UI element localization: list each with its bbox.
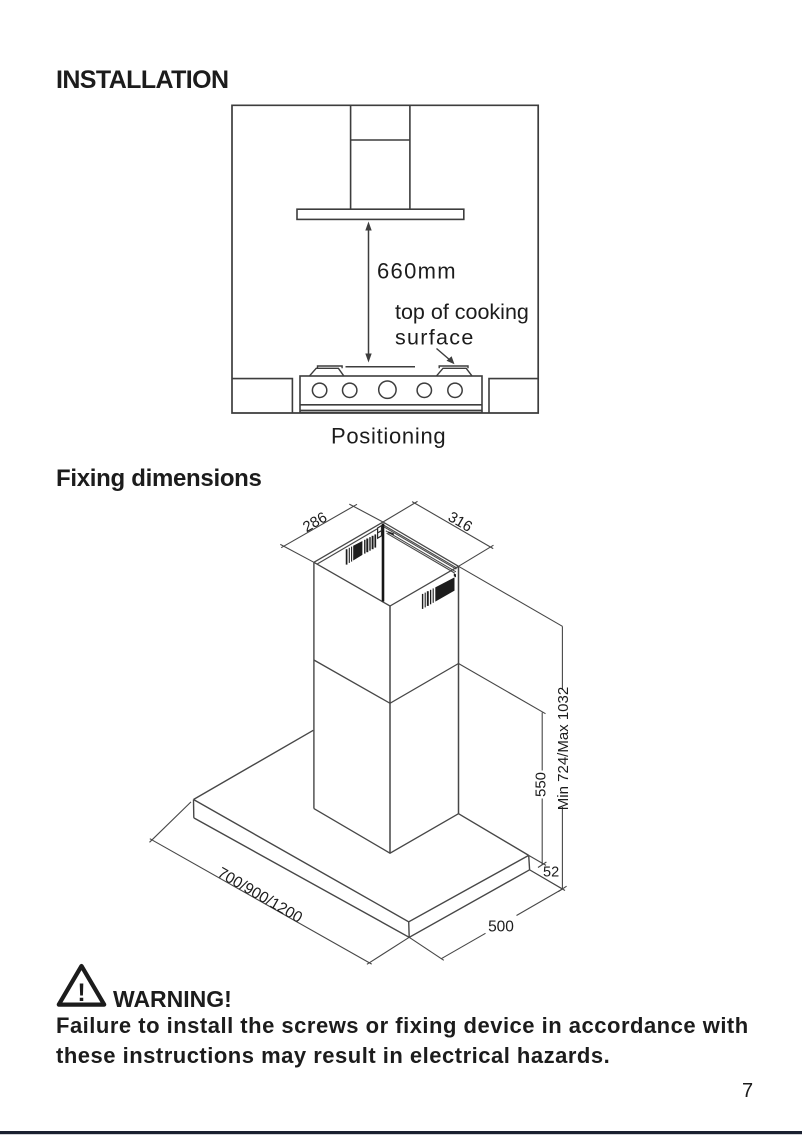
svg-text:Positioning: Positioning xyxy=(331,424,446,449)
svg-text:Min 724/Max 1032: Min 724/Max 1032 xyxy=(555,687,572,810)
svg-text:INSTALLATION: INSTALLATION xyxy=(56,66,228,94)
svg-text:Fixing dimensions: Fixing dimensions xyxy=(56,465,262,492)
svg-text:Failure to install the screws: Failure to install the screws or fixing … xyxy=(56,1013,749,1038)
svg-text:!: ! xyxy=(77,979,85,1007)
svg-text:500: 500 xyxy=(488,918,514,935)
svg-text:316: 316 xyxy=(445,508,475,535)
svg-text:7: 7 xyxy=(742,1080,753,1102)
svg-text:top of cooking: top of cooking xyxy=(395,300,529,324)
svg-text:52: 52 xyxy=(543,864,559,880)
svg-text:660mm: 660mm xyxy=(377,259,457,284)
svg-text:550: 550 xyxy=(532,772,549,797)
svg-text:286: 286 xyxy=(300,509,330,536)
svg-text:surface: surface xyxy=(395,326,475,350)
svg-text:700/900/1200: 700/900/1200 xyxy=(214,865,305,927)
svg-text:WARNING!: WARNING! xyxy=(113,986,232,1012)
svg-text:these instructions may result: these instructions may result in electri… xyxy=(56,1043,610,1068)
